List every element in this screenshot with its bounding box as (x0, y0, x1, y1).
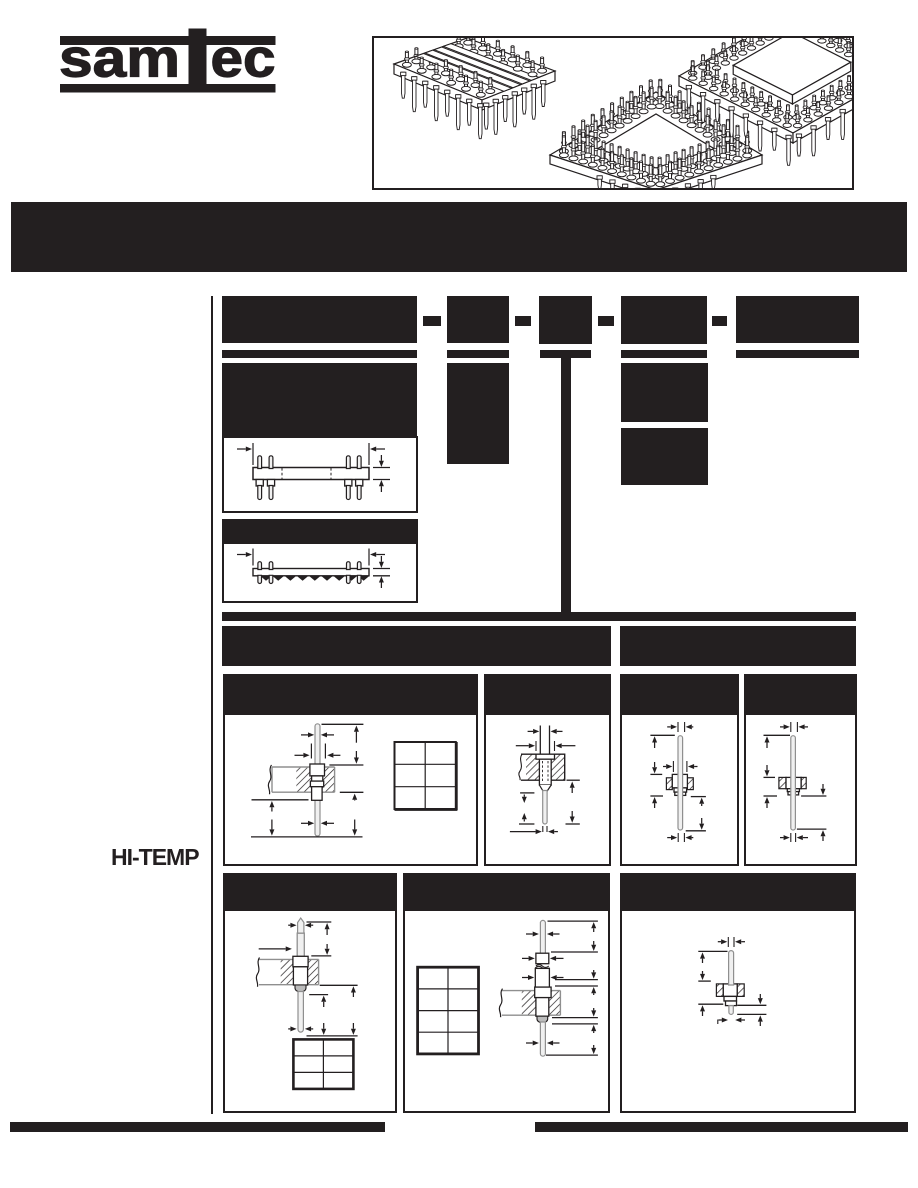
svg-text:sam: sam (59, 29, 180, 89)
svg-text:ec: ec (211, 29, 276, 89)
